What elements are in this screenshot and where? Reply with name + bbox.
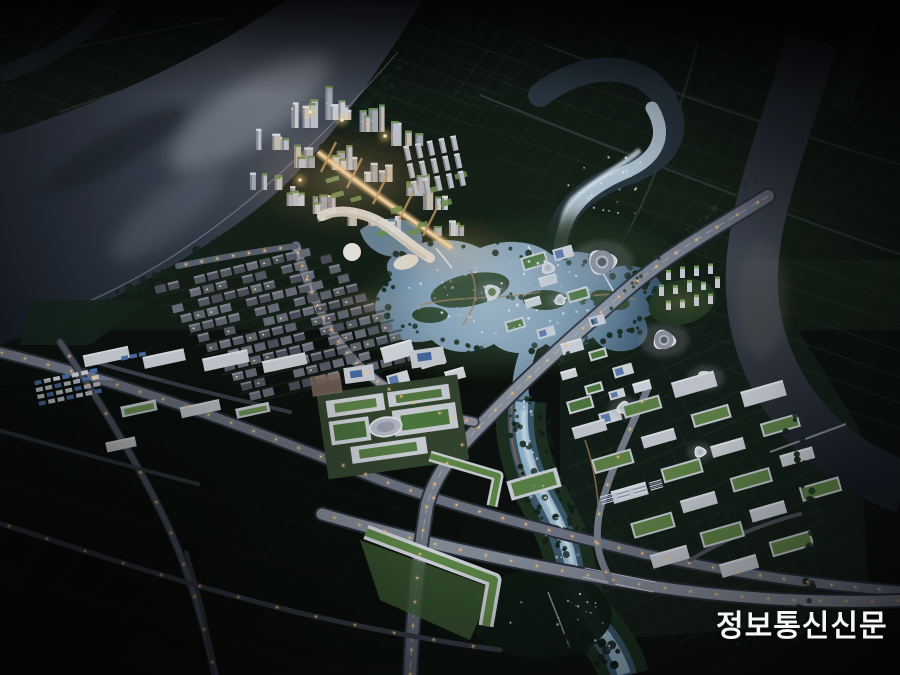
- atmosphere: [0, 0, 900, 675]
- masterplan-scene: [0, 0, 900, 675]
- watermark-text: 정보통신신문: [716, 610, 900, 644]
- city-aerial-render: 정보통신신문: [0, 0, 900, 675]
